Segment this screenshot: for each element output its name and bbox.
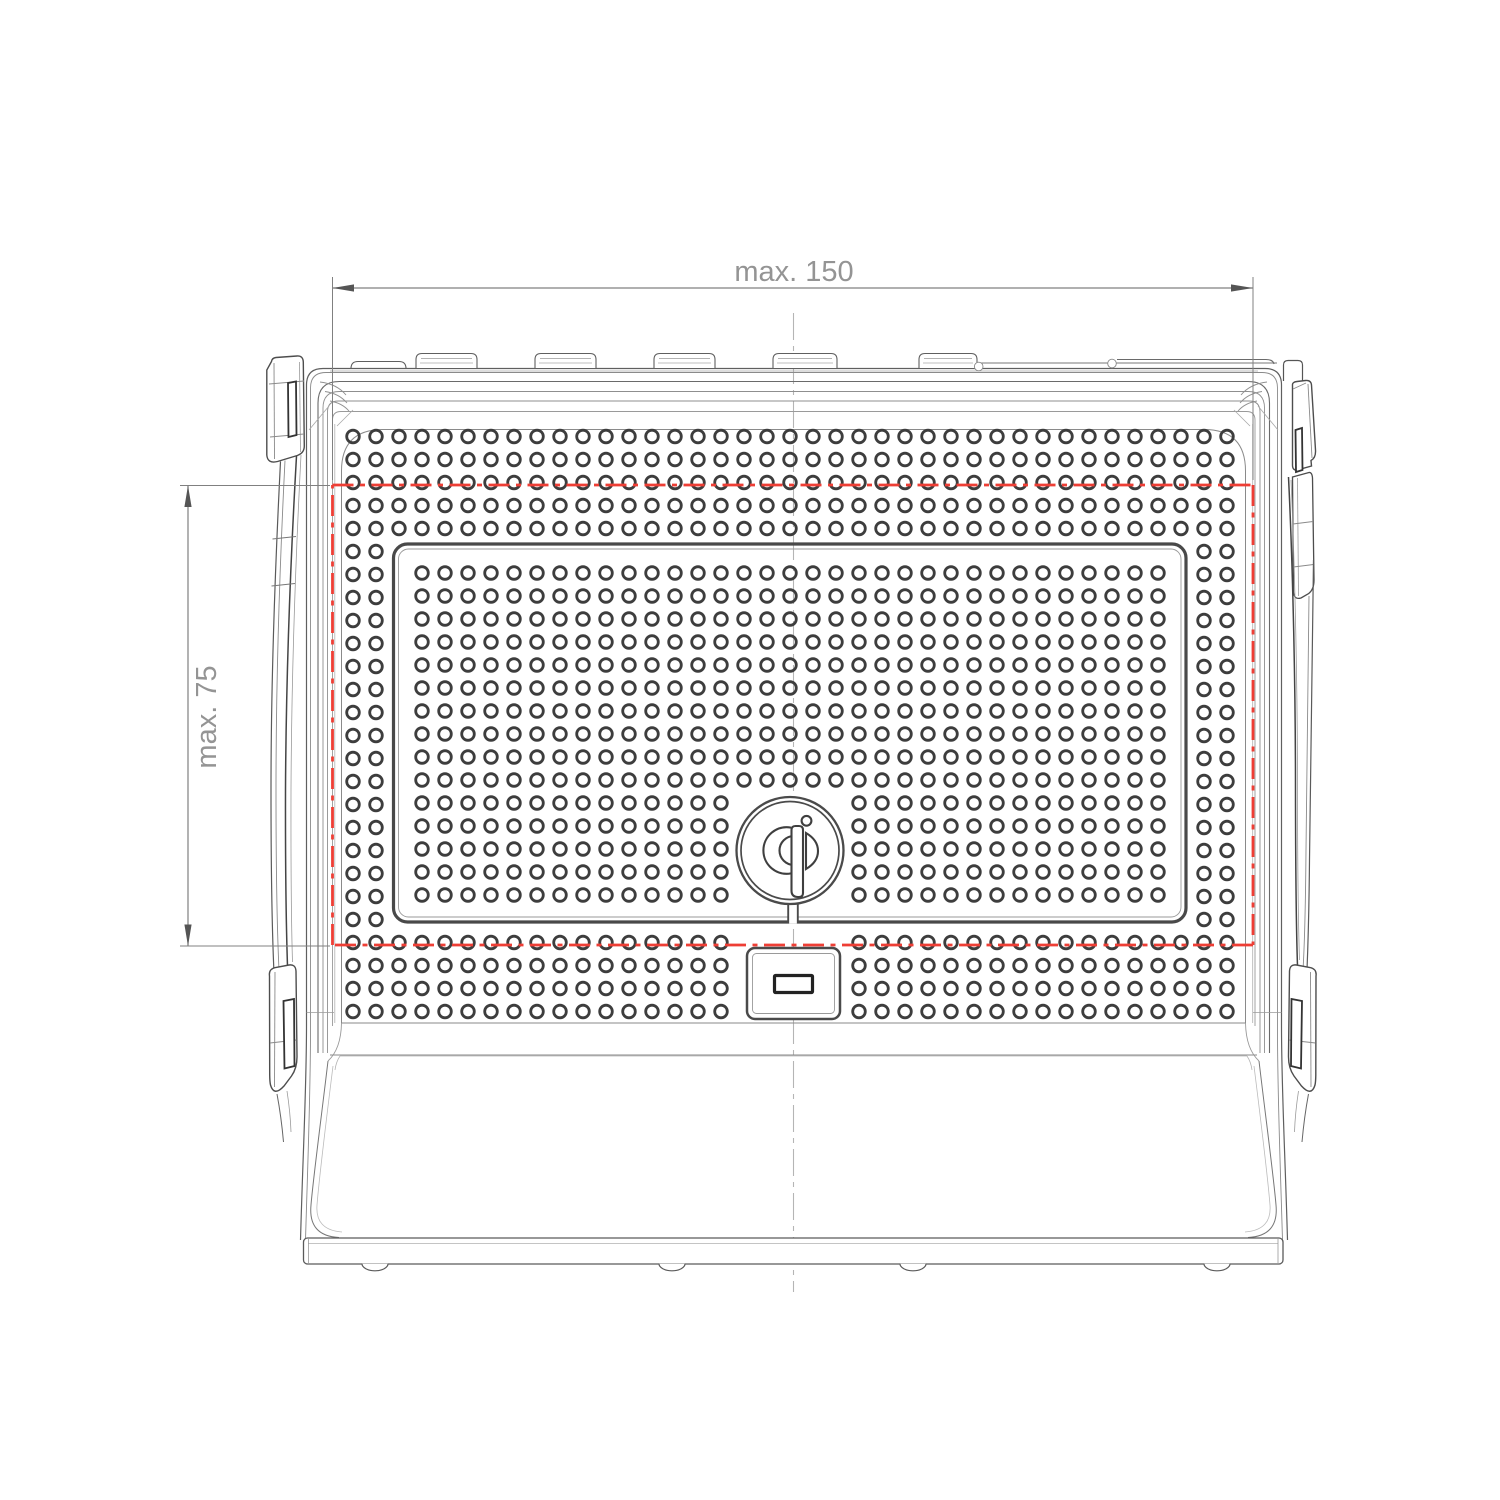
svg-text:max. 150: max. 150: [734, 256, 853, 288]
svg-text:max. 75: max. 75: [191, 665, 223, 768]
